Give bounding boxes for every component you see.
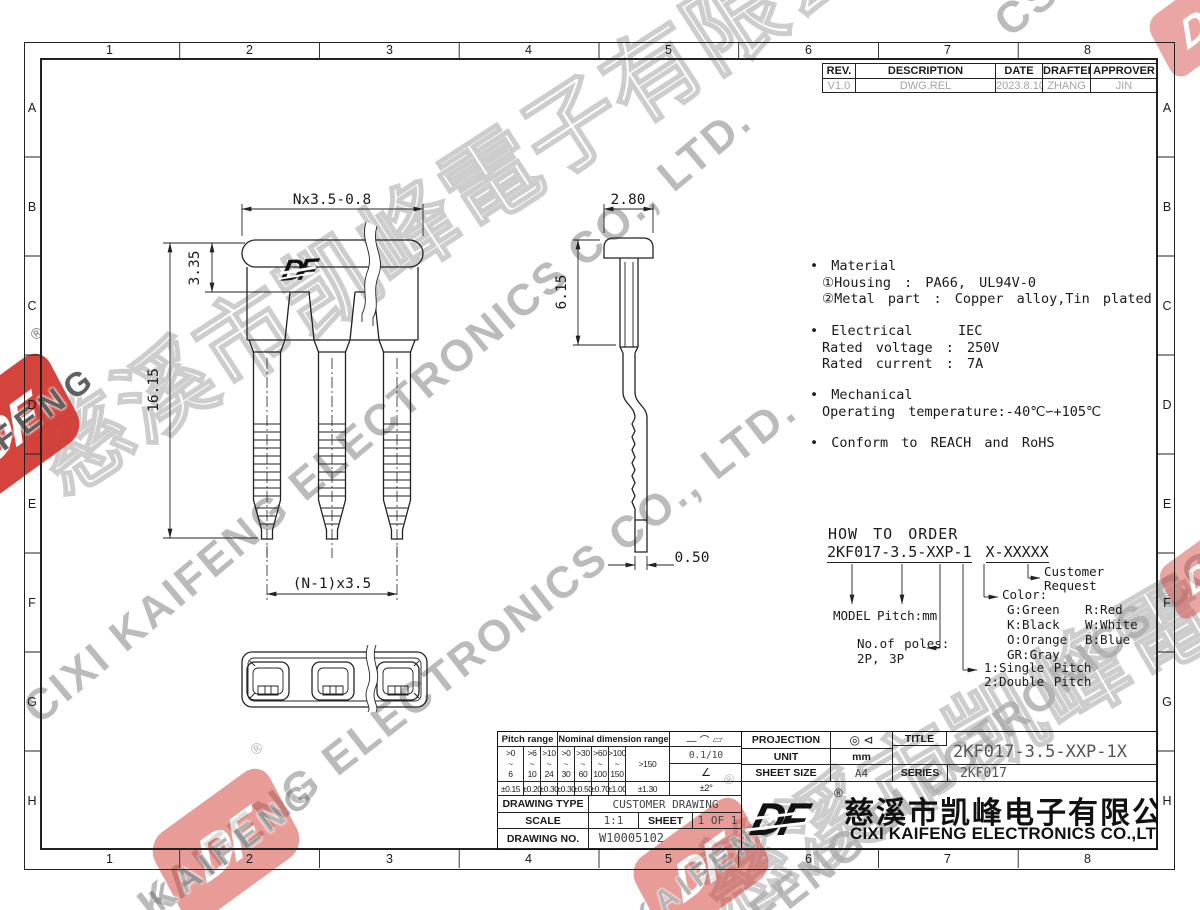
- range-mid: ~: [615, 759, 620, 770]
- zone-number-top: 6: [739, 43, 878, 57]
- projection-label: PROJECTION: [742, 732, 831, 749]
- tolerance-value: ±1.00: [609, 782, 626, 796]
- order-poles-label: No.of poles:: [857, 636, 949, 651]
- zone-letter-right: A: [1160, 58, 1174, 157]
- revision-approver: JIN: [1091, 78, 1157, 92]
- range-top: >6: [527, 748, 536, 759]
- order-code-main: 2KF017-3.5-XXP-1: [827, 543, 972, 563]
- zone-letter-left: A: [25, 58, 39, 157]
- revision-header: DATE: [996, 64, 1043, 78]
- range-top: >30: [576, 748, 590, 759]
- spec-rated-current: Rated current : 7A: [822, 356, 983, 372]
- tolerance-value: ±0.70: [592, 782, 609, 796]
- range-mid: ~: [530, 759, 535, 770]
- order-color-row: K:Black W:White: [1007, 617, 1060, 632]
- tolerance-value: ±0.30: [558, 782, 575, 796]
- company-name-en: CIXI KAIFENG ELECTRONICS CO.,LTD: [850, 824, 1157, 844]
- tolerance-value: ±0.15: [498, 782, 524, 796]
- range-top: >0: [561, 748, 570, 759]
- zone-number-bottom: 3: [320, 852, 459, 866]
- range-bot: 10: [528, 769, 537, 780]
- order-customer-2: Request: [1044, 578, 1097, 593]
- range-top: >10: [542, 748, 556, 759]
- revision-header: DESCRIPTION: [856, 64, 996, 78]
- range-cell: >60~100: [592, 747, 609, 782]
- front-view: [242, 222, 423, 558]
- revision-value-row: V1.0 DWG.REL 2023.8.10 ZHANG JIN: [823, 78, 1157, 92]
- dim-side-height: 6.15: [554, 275, 570, 310]
- spec-operating-temp: Operating temperature:-40℃∽+105℃: [822, 404, 1101, 420]
- tolerance-value: ±0.30: [541, 782, 558, 796]
- range-over150: >150: [626, 747, 670, 782]
- range-mid: ~: [598, 759, 603, 770]
- zone-number-top: 8: [1018, 43, 1157, 57]
- color-option: O:Orange: [1007, 632, 1067, 647]
- revision-header-row: REV. DESCRIPTION DATE DRAFTER APPROVER: [823, 64, 1157, 78]
- range-bot: 100: [593, 769, 606, 780]
- third-angle-circle-icon: ◎: [850, 733, 860, 747]
- side-view: [604, 238, 653, 552]
- range-cell: >100~150: [609, 747, 626, 782]
- range-mid: ~: [508, 759, 513, 770]
- order-model-label: MODEL: [833, 608, 871, 623]
- order-customer-1: Customer: [1044, 564, 1104, 579]
- projection-symbols: ◎ ⊲: [831, 732, 892, 749]
- zone-letter-left: F: [25, 553, 39, 652]
- range-cell: >6~10: [524, 747, 541, 782]
- title-block-right: PROJECTION ◎ ⊲ UNIT mm SHEET SIZE A4 TIT…: [742, 732, 1157, 848]
- tolerance-value: ±0.20: [524, 782, 541, 796]
- zone-letter-right: B: [1160, 157, 1174, 256]
- range-cell: >10~24: [541, 747, 558, 782]
- series-value: 2KF017: [948, 765, 1157, 782]
- range-over150-label: >150: [639, 759, 657, 770]
- dim-side-width: 2.80: [611, 192, 646, 208]
- spec-material-metal: ②Metal part : Copper alloy,Tin plated: [822, 291, 1152, 307]
- zone-letter-right: H: [1160, 751, 1174, 850]
- range-mid: ~: [564, 759, 569, 770]
- zone-number-top: 2: [180, 43, 319, 57]
- drawing-type-value: CUSTOMER DRAWING: [589, 796, 742, 813]
- dim-slot-depth: 3.35: [187, 251, 203, 286]
- revision-description: DWG.REL: [856, 78, 996, 92]
- revision-header: APPROVER: [1091, 64, 1157, 78]
- color-option: R:Red: [1085, 602, 1123, 617]
- range-mid: ~: [581, 759, 586, 770]
- scale-value: 1:1: [589, 813, 639, 829]
- range-cell: >0~30: [558, 747, 575, 782]
- dimensions: Nx3.5-0.8 3.35 16.15 (N-1)x3.5 2.80 6.15…: [146, 192, 709, 600]
- drawing-sheet: 慈溪市凯峰電子有限公司 CIXI KAIFENG ELECTRONICS CO.…: [0, 0, 1200, 910]
- range-bot: 60: [579, 769, 588, 780]
- spec-conform: • Conform to REACH and RoHS: [810, 435, 1054, 451]
- zone-number-top: 1: [40, 43, 179, 57]
- dim-front-width: Nx3.5-0.8: [293, 192, 372, 208]
- unit-value: mm: [831, 749, 892, 765]
- angle-symbol: ∠: [670, 764, 742, 782]
- order-double-pitch: 2:Double Pitch: [984, 674, 1091, 689]
- order-code-suffix: X-XXXXX: [986, 543, 1049, 563]
- title-block: Pitch range Nominal dimension range —⌒▱ …: [497, 731, 1158, 850]
- range-mid: ~: [547, 759, 552, 770]
- tolerance-symbols: —⌒▱: [670, 732, 742, 747]
- zone-letter-right: F: [1160, 553, 1174, 652]
- order-code: 2KF017-3.5-XXP-1 X-XXXXX: [827, 543, 1049, 561]
- order-color-row: GR:Gray: [1007, 647, 1060, 662]
- range-bot: 150: [610, 769, 623, 780]
- zone-letter-left: D: [25, 355, 39, 454]
- zone-letter-right: E: [1160, 454, 1174, 553]
- revision-header: REV.: [823, 64, 856, 78]
- df-company-logo: DF: [746, 796, 809, 842]
- color-option: G:Green: [1007, 602, 1060, 617]
- dim-pitch: (N-1)x3.5: [293, 576, 372, 592]
- bottom-view: [242, 645, 427, 712]
- sheet-value: 1 OF 1: [693, 813, 742, 829]
- revision-header: DRAFTER: [1043, 64, 1091, 78]
- zone-letter-right: C: [1160, 256, 1174, 355]
- sheet-size-label: SHEET SIZE: [742, 765, 831, 782]
- tolerance-table: Pitch range Nominal dimension range —⌒▱ …: [498, 732, 742, 848]
- spec-material-housing: ①Housing : PA66, UL94V-0: [822, 275, 1036, 291]
- order-single-pitch: 1:Single Pitch: [984, 660, 1091, 675]
- drawing-no-label: DRAWING NO.: [498, 829, 589, 848]
- flatness-value: 0.1/10: [670, 747, 742, 764]
- drawing-type-label: DRAWING TYPE: [498, 796, 589, 813]
- zone-letter-left: E: [25, 454, 39, 553]
- range-top: >100: [609, 748, 626, 759]
- range-cell: >30~60: [575, 747, 592, 782]
- range-bot: 6: [508, 769, 512, 780]
- spec-material-title: • Material: [810, 258, 896, 274]
- zone-letter-left: H: [25, 751, 39, 850]
- title-value: 2KF017-3.5-XXP-1X: [953, 739, 1157, 765]
- zone-letter-left: C: [25, 256, 39, 355]
- series-label: SERIES: [892, 765, 948, 782]
- dim-total-height: 16.15: [146, 368, 162, 412]
- angle-tolerance: ±2°: [670, 782, 742, 796]
- spec-electrical-title: • Electrical IEC: [810, 323, 913, 339]
- color-option: K:Black: [1007, 617, 1060, 632]
- sheet-size-value: A4: [831, 765, 892, 782]
- registered-icon: ®: [834, 786, 843, 800]
- spec-electrical-label: • Electrical: [810, 323, 913, 339]
- order-poles-value: 2P, 3P: [857, 651, 904, 666]
- order-color-label: Color:: [1002, 587, 1047, 602]
- tolerance-value: ±1.30: [626, 782, 670, 796]
- zone-number-top: 4: [459, 43, 598, 57]
- order-title: HOW TO ORDER: [828, 525, 958, 543]
- zone-number-top: 7: [878, 43, 1017, 57]
- drawing-no-value: W10005102: [589, 829, 742, 848]
- color-option: GR:Gray: [1007, 647, 1060, 662]
- revision-table: REV. DESCRIPTION DATE DRAFTER APPROVER V…: [822, 63, 1158, 93]
- spec-mechanical-title: • Mechanical: [810, 387, 913, 403]
- zone-number-bottom: 6: [739, 852, 878, 866]
- scale-label: SCALE: [498, 813, 589, 829]
- unit-label: UNIT: [742, 749, 831, 765]
- order-color-row: O:Orange B:Blue: [1007, 632, 1067, 647]
- color-option: W:White: [1085, 617, 1138, 632]
- company-area: DF ® 慈溪市凯峰电子有限公司 CIXI KAIFENG ELECTRONIC…: [742, 782, 1157, 848]
- zone-number-bottom: 8: [1018, 852, 1157, 866]
- zone-number-bottom: 1: [40, 852, 179, 866]
- zone-number-bottom: 7: [878, 852, 1017, 866]
- range-top: >0: [506, 748, 515, 759]
- range-bot: 24: [545, 769, 554, 780]
- title-label: TITLE: [893, 732, 947, 746]
- color-option: B:Blue: [1085, 632, 1130, 647]
- zone-number-top: 5: [599, 43, 738, 57]
- zone-letter-right: D: [1160, 355, 1174, 454]
- spec-electrical-std: IEC: [958, 323, 982, 339]
- zone-number-bottom: 4: [459, 852, 598, 866]
- zone-letter-right: G: [1160, 652, 1174, 751]
- title-area: TITLE 2KF017-3.5-XXP-1X: [892, 732, 1157, 765]
- nominal-range-header: Nominal dimension range: [558, 732, 670, 747]
- order-pitch-label: Pitch:mm: [877, 608, 937, 623]
- range-bot: 30: [562, 769, 571, 780]
- zone-letter-left: B: [25, 157, 39, 256]
- range-cell: >0~6: [498, 747, 524, 782]
- df-logo-on-part: DF: [279, 255, 315, 287]
- order-color-row: G:Green R:Red: [1007, 602, 1060, 617]
- pitch-range-header: Pitch range: [498, 732, 558, 747]
- third-angle-cone-icon: ⊲: [863, 733, 873, 747]
- zone-letter-left: G: [25, 652, 39, 751]
- revision-date: 2023.8.10: [996, 78, 1043, 92]
- revision-rev: V1.0: [823, 78, 856, 92]
- zone-number-top: 3: [320, 43, 459, 57]
- spec-rated-voltage: Rated voltage : 250V: [822, 340, 1000, 356]
- dim-pin-width: 0.50: [675, 550, 710, 566]
- zone-number-bottom: 2: [180, 852, 319, 866]
- zone-number-bottom: 5: [599, 852, 738, 866]
- revision-drafter: ZHANG: [1043, 78, 1091, 92]
- tolerance-value: ±0.50: [575, 782, 592, 796]
- range-top: >60: [593, 748, 607, 759]
- sheet-label: SHEET: [639, 813, 693, 829]
